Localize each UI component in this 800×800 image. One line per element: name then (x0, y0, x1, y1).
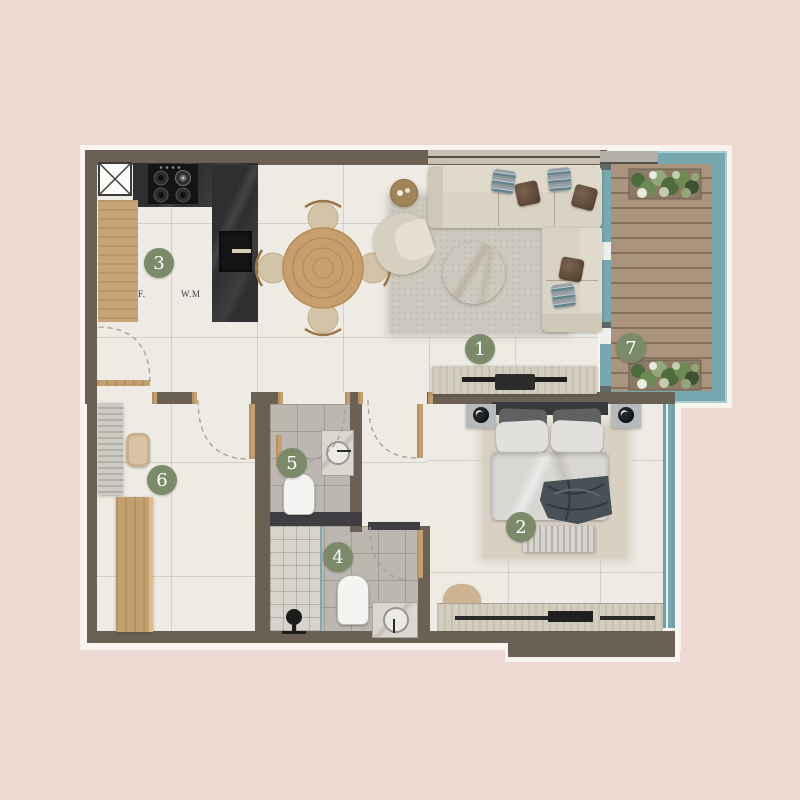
room-marker-bathroom: 4 (323, 542, 353, 572)
room-marker-hallway: 6 (147, 465, 177, 495)
door-swing-arcs (0, 0, 800, 800)
room-marker-wc: 5 (277, 448, 307, 478)
room-marker-balcony: 7 (616, 333, 646, 363)
room-marker-bedroom: 2 (506, 512, 536, 542)
floor-plan-page: { "plan": { "type": "apartment-floor-pla… (0, 0, 800, 800)
room-marker-living-room: 1 (465, 334, 495, 364)
floor-plan-canvas: F. W.M (0, 0, 800, 800)
room-marker-kitchen: 3 (144, 248, 174, 278)
